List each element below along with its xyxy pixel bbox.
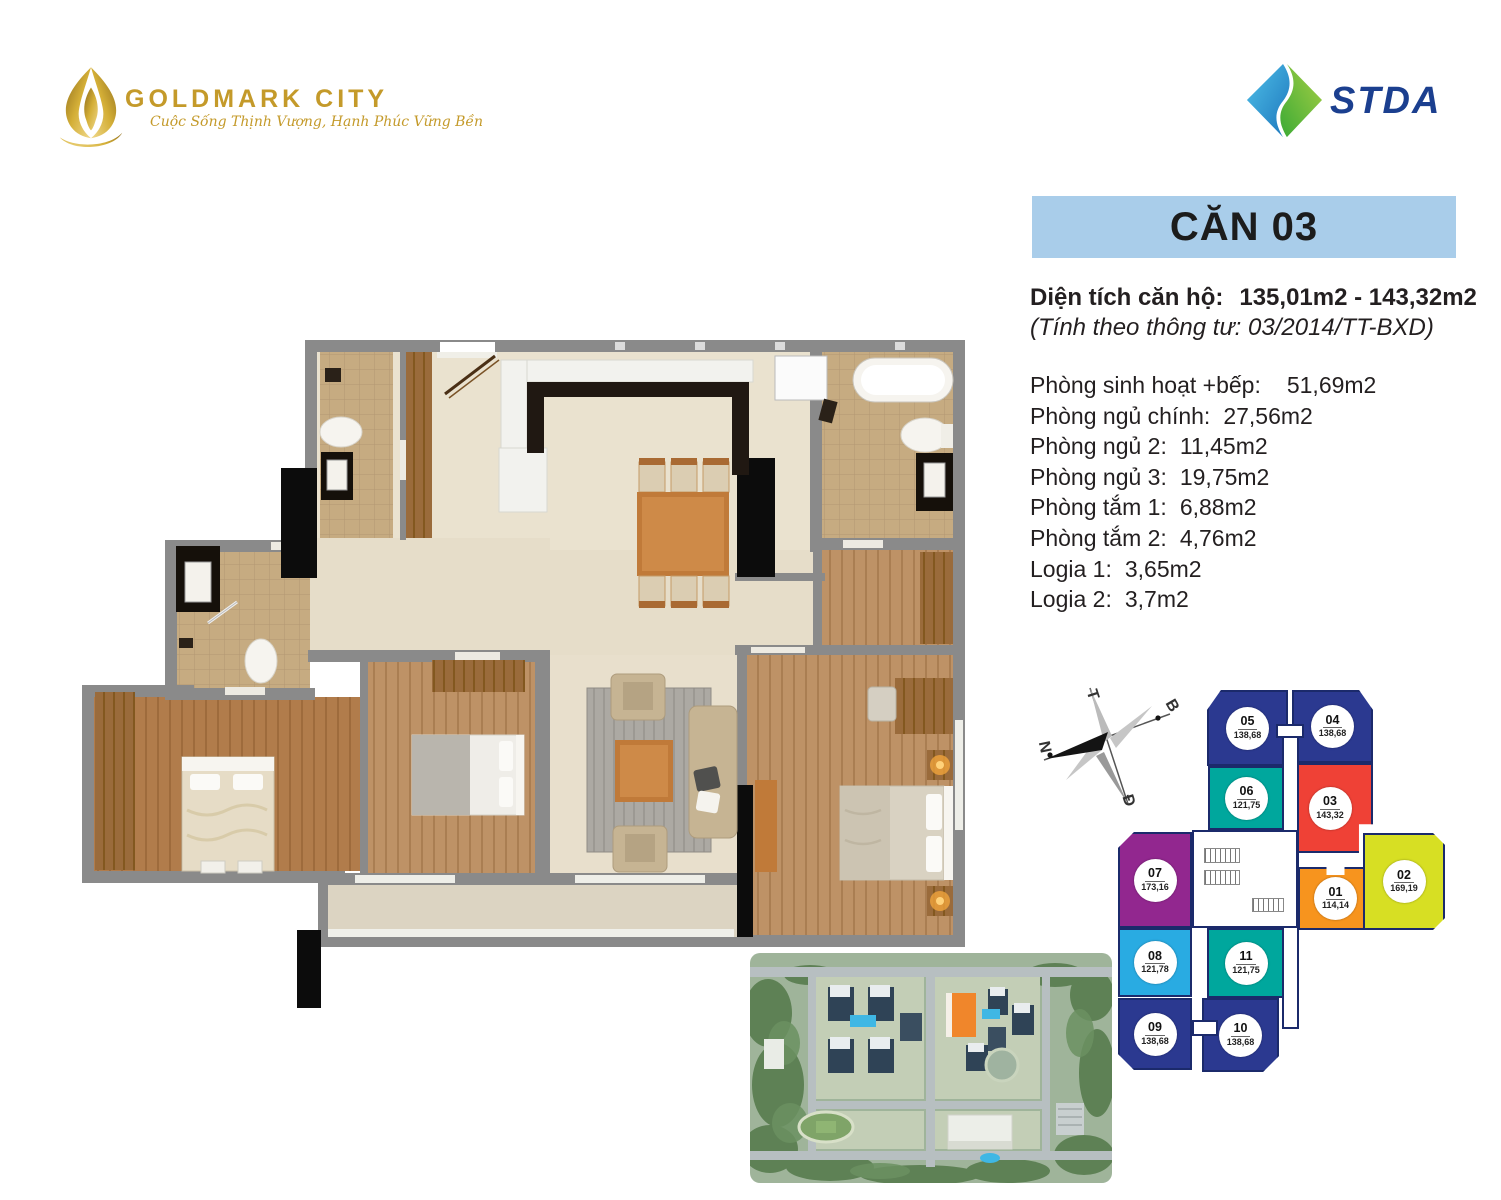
area-regulation-note: (Tính theo thông tư: 03/2014/TT-BXD) bbox=[1030, 314, 1434, 342]
unit-block-02: 02169,19 bbox=[1363, 833, 1445, 930]
lobby-core bbox=[1192, 830, 1298, 928]
goldmark-lotus-icon bbox=[52, 64, 130, 150]
dining-set bbox=[637, 458, 729, 608]
room-area-row: Phòng tắm 1:6,88m2 bbox=[1030, 494, 1376, 525]
brand-name: GOLDMARK CITY bbox=[125, 85, 388, 114]
floor-key-plan: 05138,68 04138,68 06121,75 03143,32 0717… bbox=[1112, 688, 1457, 1080]
room-area-row: Phòng ngủ chính:27,56m2 bbox=[1030, 403, 1376, 434]
unit-block-08: 08121,78 bbox=[1118, 928, 1192, 997]
unit-block-09: 09138,68 bbox=[1118, 998, 1192, 1070]
core-notch-bottom bbox=[1192, 1020, 1218, 1036]
compass-label-south: N bbox=[1035, 740, 1054, 755]
stda-diamond-icon bbox=[1244, 62, 1322, 140]
room-area-row: Phòng tắm 2:4,76m2 bbox=[1030, 525, 1376, 556]
compass-label-west: T bbox=[1083, 687, 1102, 702]
site-map-aerial bbox=[750, 953, 1112, 1183]
unit-title: CĂN 03 bbox=[1170, 205, 1318, 250]
room-area-row: Logia 2:3,7m2 bbox=[1030, 586, 1376, 617]
unit-block-03-highlighted: 03143,32 bbox=[1295, 763, 1373, 853]
unit-block-04: 04138,68 bbox=[1292, 690, 1373, 763]
total-area-line: Diện tích căn hộ:135,01m2 - 143,32m2 bbox=[1030, 284, 1477, 312]
unit-block-11: 11121,75 bbox=[1207, 928, 1285, 998]
bedroom-3 bbox=[920, 552, 953, 644]
partner-logo-text: STDA bbox=[1330, 80, 1441, 123]
unit-block-01: 01114,14 bbox=[1298, 867, 1373, 930]
room-area-row: Logia 1:3,65m2 bbox=[1030, 556, 1376, 587]
unit-title-banner: CĂN 03 bbox=[1032, 196, 1456, 258]
room-area-list: Phòng sinh hoạt +bếp:51,69m2 Phòng ngủ c… bbox=[1030, 372, 1376, 617]
unit-block-06: 06121,75 bbox=[1208, 766, 1285, 830]
brand-tagline: Cuộc Sống Thịnh Vượng, Hạnh Phúc Vững Bề… bbox=[150, 114, 483, 130]
room-area-row: Phòng ngủ 3:19,75m2 bbox=[1030, 464, 1376, 495]
room-area-row: Phòng sinh hoạt +bếp:51,69m2 bbox=[1030, 372, 1376, 403]
unit-block-07: 07173,16 bbox=[1118, 832, 1192, 928]
room-area-row: Phòng ngủ 2:11,45m2 bbox=[1030, 433, 1376, 464]
core-notch-top bbox=[1276, 724, 1304, 738]
floor-plan-rendering bbox=[75, 340, 965, 1050]
